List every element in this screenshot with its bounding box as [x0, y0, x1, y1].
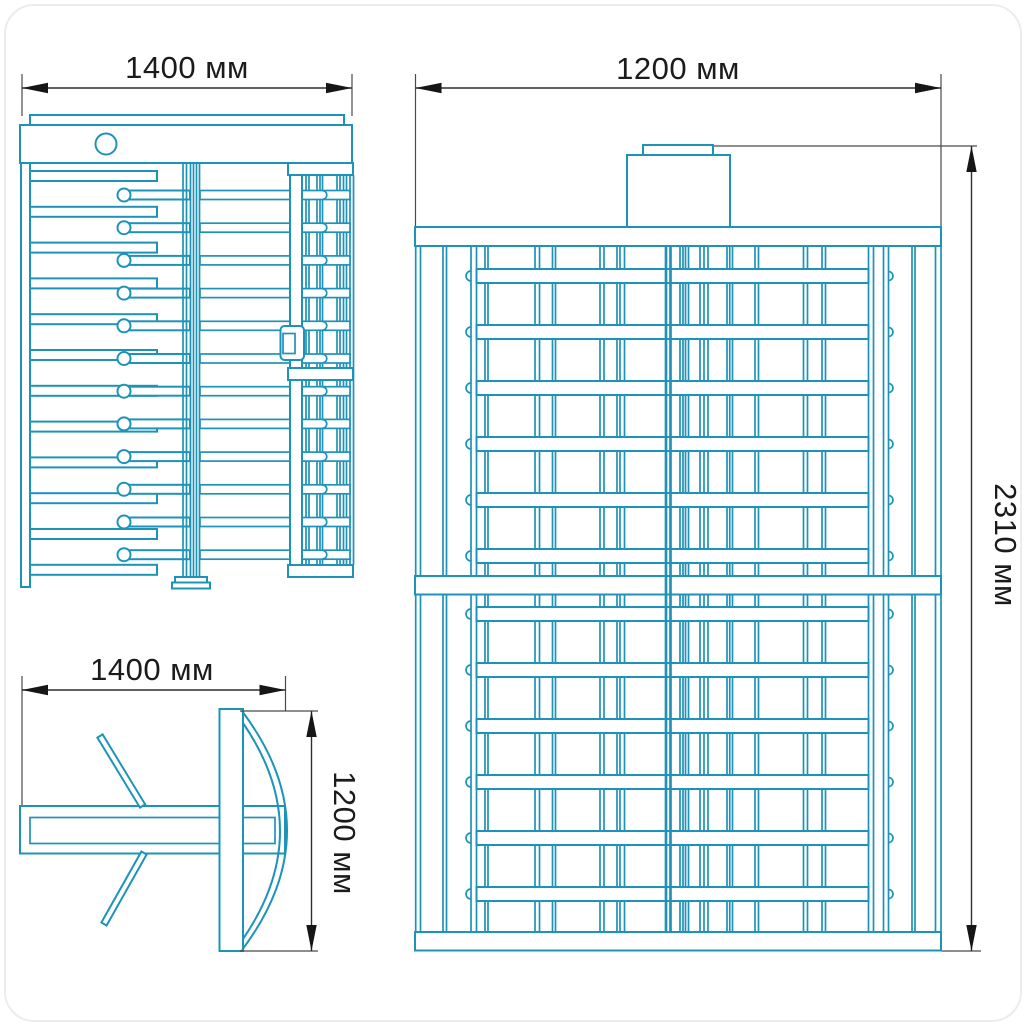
plan-rotor-arm-lower	[101, 852, 146, 926]
front-height-label: 2310 мм	[988, 483, 1023, 607]
front-top-rail	[415, 227, 941, 246]
front-width-label: 1200 мм	[616, 51, 740, 86]
side-mid-bracket	[288, 368, 353, 380]
front-view: 1200 мм 2310 мм	[415, 51, 1023, 951]
side-left-wall	[21, 163, 30, 587]
side-latch-plate	[283, 334, 295, 354]
side-bottom-bar	[288, 565, 353, 577]
front-motor-housing	[627, 155, 730, 227]
technical-drawing-page: 1400 мм	[0, 0, 1024, 1024]
plan-width-label: 1400 мм	[90, 652, 214, 687]
side-width-dimension: 1400 мм	[22, 50, 352, 116]
front-bottom-rail	[415, 932, 941, 951]
front-mid-rail	[415, 576, 941, 595]
front-motor-cap	[643, 145, 713, 155]
side-rotor-comb-bars	[30, 171, 190, 575]
side-header-lip	[30, 115, 344, 125]
turnstile-drawing: 1400 мм	[0, 0, 1024, 1024]
side-top-bar	[288, 163, 353, 175]
side-width-label: 1400 мм	[125, 50, 249, 85]
plan-depth-label: 1200 мм	[327, 771, 362, 895]
plan-rotor-arm-upper	[97, 734, 145, 807]
plan-view: 1400 мм 1200 мм	[20, 652, 362, 951]
side-post-foot-base	[172, 583, 210, 589]
plan-housing-plate	[220, 709, 244, 951]
side-header-box	[20, 125, 352, 163]
side-view: 1400 мм	[20, 50, 354, 589]
